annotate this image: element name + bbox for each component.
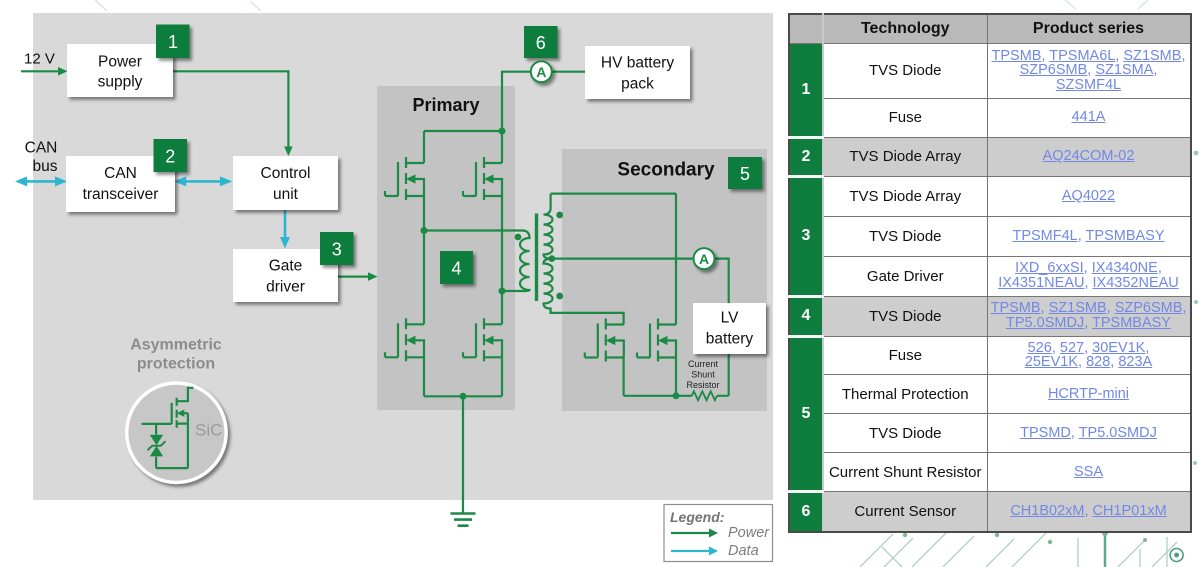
- svg-text:unit: unit: [273, 186, 299, 203]
- svg-text:Primary: Primary: [412, 95, 479, 115]
- svg-text:Power: Power: [728, 525, 770, 541]
- svg-text:Data: Data: [728, 543, 759, 559]
- svg-text:transceiver: transceiver: [83, 186, 159, 203]
- svg-text:pack: pack: [621, 76, 654, 93]
- svg-text:protection: protection: [137, 356, 215, 373]
- svg-text:Legend:: Legend:: [670, 509, 724, 525]
- svg-text:driver: driver: [266, 279, 305, 296]
- svg-text:Resistor: Resistor: [686, 380, 719, 390]
- svg-text:Gate: Gate: [269, 258, 303, 275]
- svg-text:4: 4: [451, 259, 461, 279]
- svg-text:1: 1: [168, 32, 178, 52]
- svg-text:Asymmetric: Asymmetric: [130, 337, 222, 354]
- svg-text:Control: Control: [261, 165, 311, 182]
- svg-text:A: A: [536, 64, 546, 80]
- svg-text:battery: battery: [706, 331, 754, 348]
- svg-text:CAN: CAN: [25, 140, 58, 157]
- svg-text:HV battery: HV battery: [601, 55, 674, 72]
- svg-text:Secondary: Secondary: [617, 160, 715, 181]
- svg-text:Power: Power: [98, 54, 142, 71]
- svg-text:3: 3: [332, 240, 342, 260]
- svg-text:Current: Current: [688, 359, 719, 369]
- svg-text:bus: bus: [33, 158, 58, 175]
- svg-text:6: 6: [536, 33, 546, 53]
- svg-text:Shunt: Shunt: [691, 370, 715, 380]
- svg-text:supply: supply: [98, 74, 143, 91]
- svg-text:A: A: [699, 251, 709, 267]
- svg-text:SiC: SiC: [195, 421, 222, 440]
- svg-text:2: 2: [165, 147, 175, 167]
- svg-text:5: 5: [740, 164, 750, 184]
- svg-text:LV: LV: [721, 310, 739, 327]
- svg-text:12 V: 12 V: [24, 51, 55, 68]
- svg-text:CAN: CAN: [104, 165, 137, 182]
